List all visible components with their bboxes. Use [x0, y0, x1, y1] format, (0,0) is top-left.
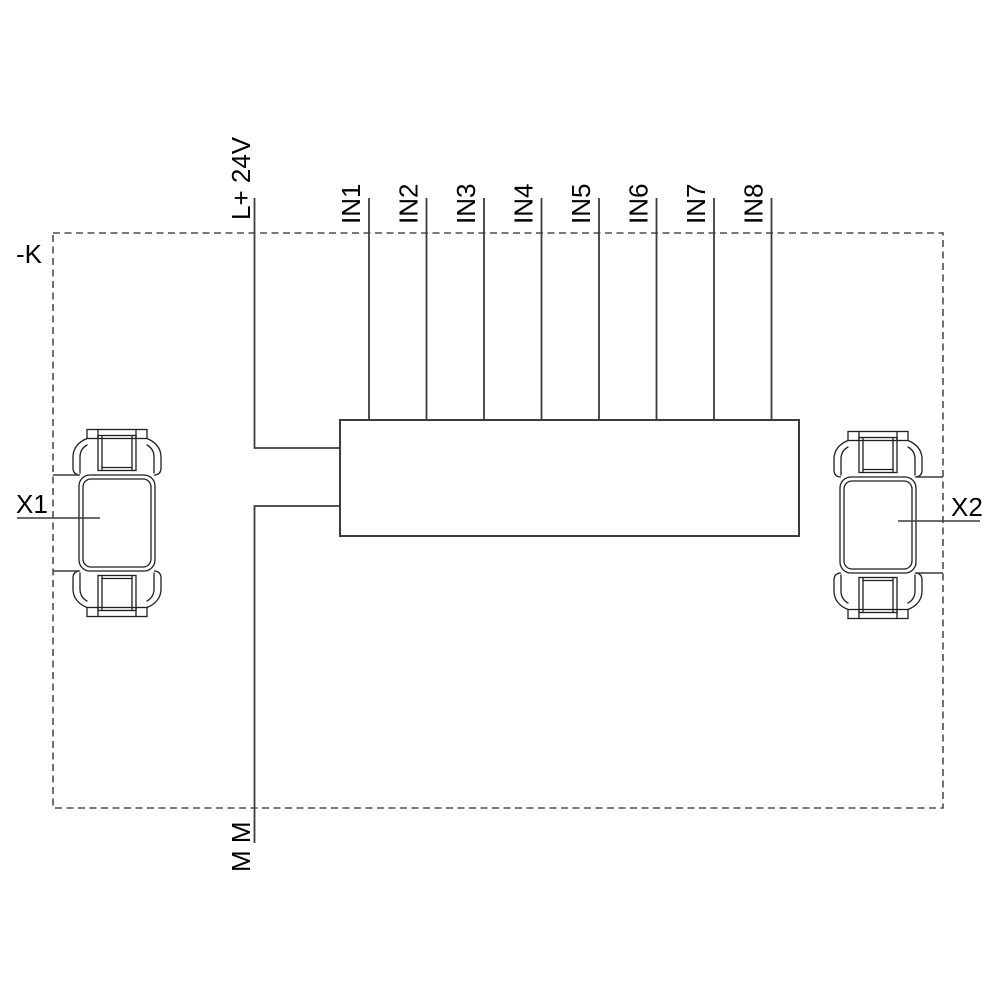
connector-x1-label: X1: [16, 489, 48, 519]
power-supply-wire: [255, 198, 341, 448]
input-label: IN8: [739, 184, 769, 224]
input-label: IN5: [566, 184, 596, 224]
wiring-diagram: -K L+ 24V M M IN1 IN2 IN3 IN4 IN5 IN6: [0, 0, 1000, 1000]
input-labels: IN1 IN2 IN3 IN4 IN5 IN6 IN7 IN8: [336, 184, 769, 224]
connector-x2-symbol: [834, 432, 922, 619]
ground-label: M M: [226, 821, 256, 872]
connector-x2-label: X2: [951, 492, 983, 522]
input-label: IN1: [336, 184, 366, 224]
input-wires: [369, 198, 772, 420]
input-label: IN7: [681, 184, 711, 224]
input-label: IN6: [624, 184, 654, 224]
input-label: IN4: [509, 184, 539, 224]
module-boundary: [53, 233, 943, 808]
power-supply-label: L+ 24V: [226, 136, 256, 220]
connector-x1-symbol: [73, 430, 161, 617]
io-module-box: [340, 420, 799, 536]
input-label: IN3: [451, 184, 481, 224]
schematic-canvas: -K L+ 24V M M IN1 IN2 IN3 IN4 IN5 IN6: [0, 0, 1000, 1000]
ground-wire: [255, 506, 341, 843]
input-label: IN2: [394, 184, 424, 224]
module-label: -K: [16, 239, 43, 269]
